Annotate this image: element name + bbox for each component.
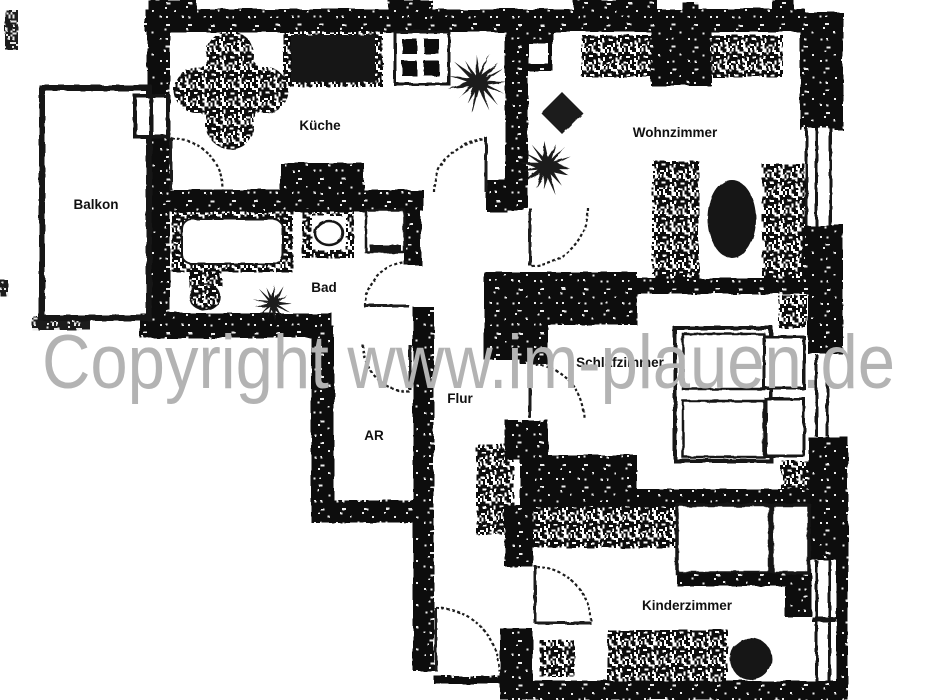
svg-text:Balkon: Balkon bbox=[73, 197, 118, 212]
svg-text:Bad: Bad bbox=[311, 280, 337, 295]
svg-text:Copyright www.im-plauen.de: Copyright www.im-plauen.de bbox=[42, 320, 895, 405]
svg-text:AR: AR bbox=[364, 428, 384, 443]
svg-text:Küche: Küche bbox=[299, 118, 341, 133]
svg-text:Kinderzimmer: Kinderzimmer bbox=[642, 598, 733, 613]
svg-text:Wohnzimmer: Wohnzimmer bbox=[633, 125, 718, 140]
